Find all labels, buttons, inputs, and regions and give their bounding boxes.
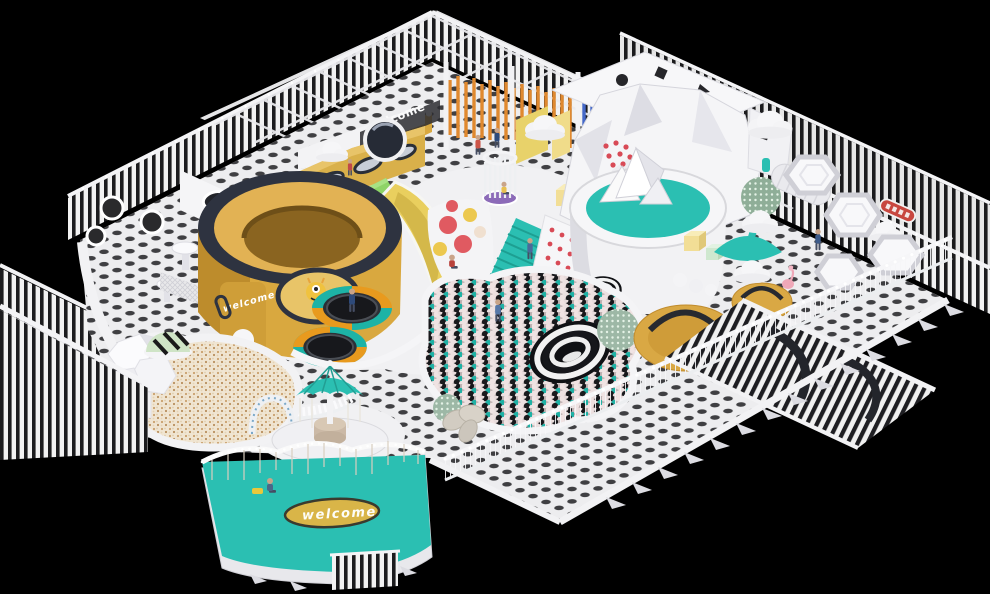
- scene-canvas: welcome: [0, 0, 990, 594]
- bubble-window: [365, 120, 405, 160]
- playground-render: welcome: [0, 0, 990, 594]
- teal-window: [762, 158, 770, 172]
- round-window: [141, 211, 163, 233]
- entrance-platform: welcome: [202, 441, 432, 590]
- striped-steps: [332, 552, 398, 590]
- round-window: [101, 197, 123, 219]
- round-window: [87, 227, 105, 245]
- toy-car: [252, 488, 263, 494]
